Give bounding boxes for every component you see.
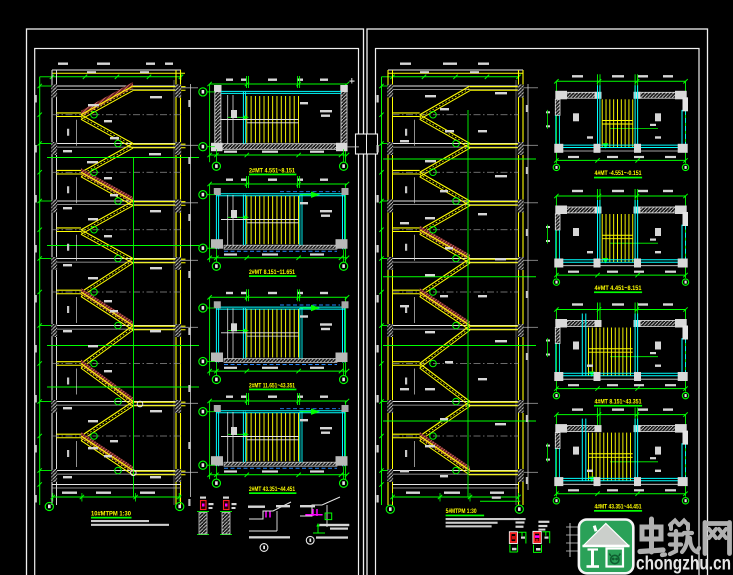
svg-text:5#MTPM 1:30: 5#MTPM 1:30	[446, 508, 477, 515]
svg-text:10#MTPM 1:30: 10#MTPM 1:30	[91, 511, 132, 518]
svg-text:4#MT 8.151~43.351: 4#MT 8.151~43.351	[595, 398, 642, 405]
svg-text:chongzhu.cn: chongzhu.cn	[636, 554, 731, 575]
svg-text:2#MT 4.551~8.151: 2#MT 4.551~8.151	[249, 167, 295, 174]
svg-text:2#MT 11.651~43.351: 2#MT 11.651~43.351	[249, 382, 295, 389]
svg-text:4#MT 43.351~44.451: 4#MT 43.351~44.451	[595, 503, 642, 510]
svg-text:2#MT 8.151~11.651: 2#MT 8.151~11.651	[249, 269, 295, 276]
svg-text:4#MT 4.451~8.151: 4#MT 4.451~8.151	[595, 285, 642, 292]
svg-text:2#MT 43.351~44.451: 2#MT 43.351~44.451	[249, 486, 295, 493]
svg-text:4#MT -4.551~-0.151: 4#MT -4.551~-0.151	[595, 170, 642, 177]
